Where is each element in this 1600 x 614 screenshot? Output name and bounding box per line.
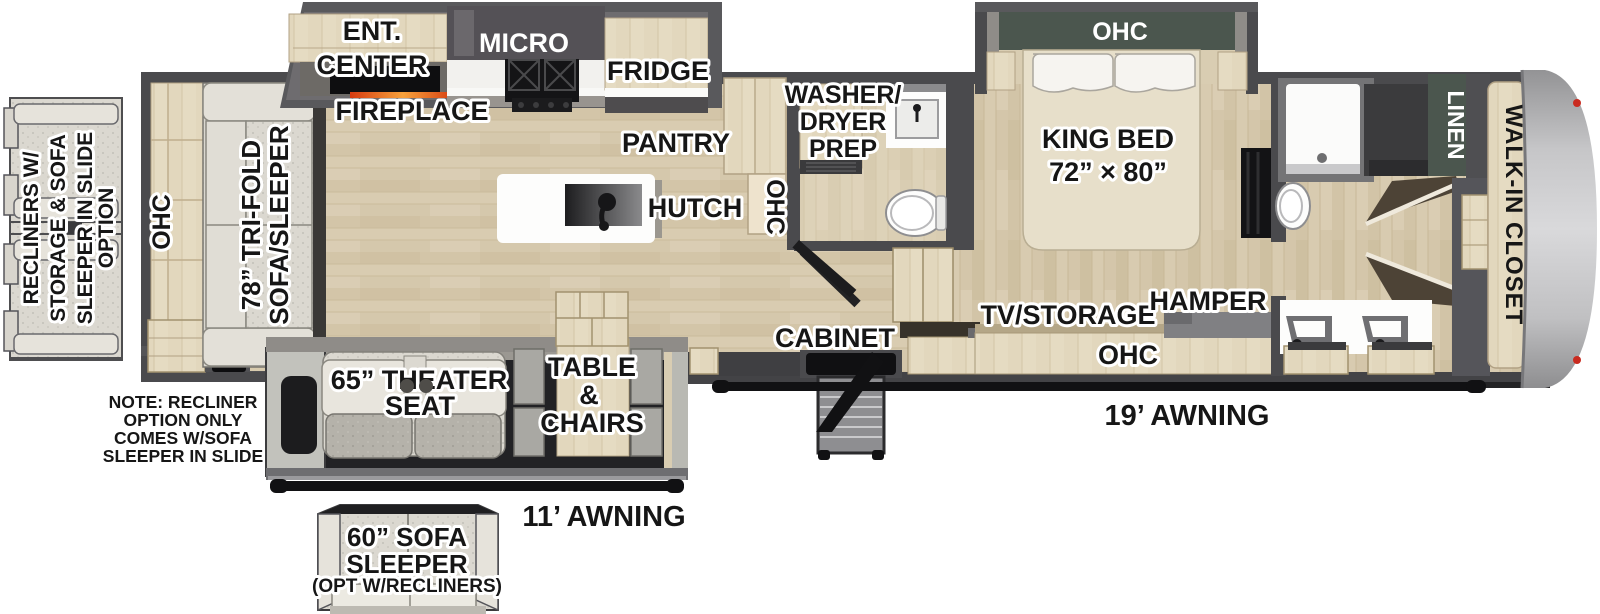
- svg-text:NOTE: RECLINER: NOTE: RECLINER: [109, 392, 258, 412]
- svg-text:(OPT W/RECLINERS): (OPT W/RECLINERS): [312, 576, 502, 597]
- svg-text:PANTRY: PANTRY: [622, 128, 730, 158]
- svg-text:STORAGE & SOFA: STORAGE & SOFA: [47, 134, 70, 321]
- svg-text:LINEN: LINEN: [1443, 91, 1469, 160]
- svg-text:OHC: OHC: [761, 179, 789, 235]
- svg-text:OHC: OHC: [148, 194, 176, 250]
- svg-text:FIREPLACE: FIREPLACE: [335, 96, 488, 126]
- svg-text:72” × 80”: 72” × 80”: [1049, 157, 1167, 187]
- svg-text:60” SOFA: 60” SOFA: [347, 522, 467, 552]
- svg-text:CHAIRS: CHAIRS: [540, 408, 644, 438]
- svg-text:FRIDGE: FRIDGE: [607, 56, 709, 86]
- svg-text:MICRO: MICRO: [479, 28, 569, 58]
- svg-text:OHC: OHC: [1092, 18, 1148, 46]
- svg-text:SLEEPER IN SLIDE: SLEEPER IN SLIDE: [74, 132, 97, 325]
- svg-text:KING BED: KING BED: [1042, 124, 1174, 154]
- svg-text:WALK-IN CLOSET: WALK-IN CLOSET: [1500, 105, 1527, 326]
- svg-text:COMES W/SOFA: COMES W/SOFA: [114, 428, 252, 448]
- svg-text:OPTION: OPTION: [95, 188, 118, 269]
- svg-text:OPTION ONLY: OPTION ONLY: [124, 410, 243, 430]
- svg-text:TABLE: TABLE: [548, 352, 636, 382]
- svg-text:SLEEPER IN SLIDE: SLEEPER IN SLIDE: [103, 446, 263, 466]
- svg-text:TV/STORAGE: TV/STORAGE: [980, 300, 1155, 330]
- svg-text:19’ AWNING: 19’ AWNING: [1105, 400, 1270, 432]
- svg-text:CENTER: CENTER: [316, 50, 427, 80]
- svg-text:11’ AWNING: 11’ AWNING: [522, 501, 685, 533]
- svg-text:PREP: PREP: [809, 135, 877, 163]
- svg-text:78” TRI-FOLD: 78” TRI-FOLD: [236, 140, 266, 310]
- svg-text:SOFA/SLEEPER: SOFA/SLEEPER: [264, 125, 294, 325]
- svg-text:CABINET: CABINET: [775, 323, 896, 353]
- svg-text:HUTCH: HUTCH: [648, 193, 743, 223]
- svg-text:SEAT: SEAT: [385, 391, 456, 421]
- svg-text:DRYER: DRYER: [800, 108, 887, 136]
- svg-text:WASHER/: WASHER/: [785, 81, 902, 109]
- svg-text:&: &: [579, 380, 599, 410]
- svg-text:OHC: OHC: [1098, 340, 1158, 370]
- svg-text:SLEEPER: SLEEPER: [346, 549, 468, 579]
- svg-text:HAMPER: HAMPER: [1149, 286, 1266, 316]
- svg-text:RECLINERS W/: RECLINERS W/: [20, 151, 43, 304]
- svg-text:ENT.: ENT.: [343, 16, 402, 46]
